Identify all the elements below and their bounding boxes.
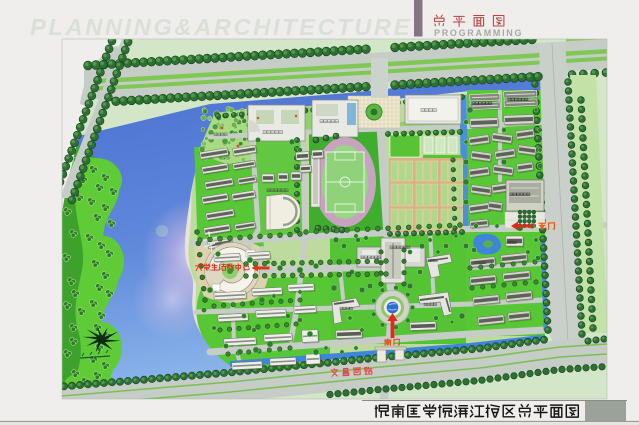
svg-text:PLANNING&ARCHITECTURE: PLANNING&ARCHITECTURE xyxy=(30,14,412,40)
svg-text:PROGRAMMING: PROGRAMMING xyxy=(434,28,523,38)
